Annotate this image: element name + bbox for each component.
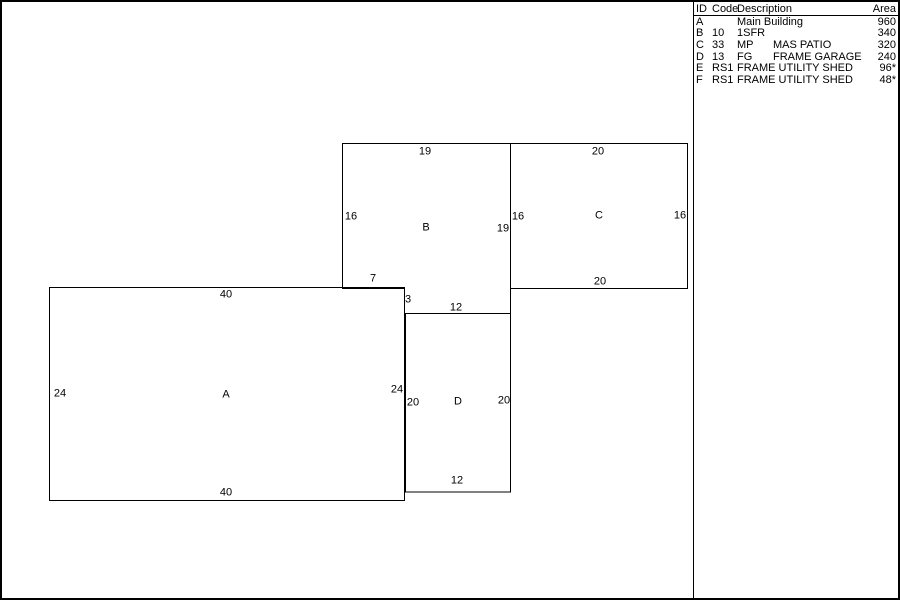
dim-d-left: 20 xyxy=(407,398,419,409)
legend-row-c: C 33 MPMAS PATIO 320 xyxy=(693,39,898,51)
legend-row-f: F RS1 FRAME UTILITY SHED 48* xyxy=(693,74,898,86)
legend-table: ID Code Description Area A Main Building… xyxy=(693,2,898,86)
legend-row-b: B 10 1SFR 340 xyxy=(693,28,898,40)
legend-row-id: C xyxy=(696,39,712,51)
legend-row-desc-text: FRAME UTILITY SHED xyxy=(737,62,853,74)
legend-header-code: Code xyxy=(712,3,737,15)
legend-row-desc-prefix: FG xyxy=(737,51,773,63)
dim-d-right: 20 xyxy=(498,396,510,407)
dim-b-notch-side: 3 xyxy=(405,295,411,306)
legend-row-description: MPMAS PATIO xyxy=(737,39,878,51)
legend-row-desc-text: FRAME UTILITY SHED xyxy=(737,74,853,86)
legend-row-desc-text: MAS PATIO xyxy=(773,39,831,51)
legend-header-description: Description xyxy=(737,3,873,15)
dim-b-notch-bottom: 7 xyxy=(370,274,376,285)
legend-row-description: 1SFR xyxy=(737,27,878,39)
shape-a-label: A xyxy=(222,390,229,401)
legend-row-area: 96* xyxy=(879,62,898,74)
dim-b-left: 16 xyxy=(345,212,357,223)
legend-row-area: 48* xyxy=(879,74,898,86)
shape-b-label: B xyxy=(422,223,429,234)
legend-row-id: D xyxy=(696,51,712,63)
legend-row-area: 320 xyxy=(878,39,898,51)
legend-row-description: FGFRAME GARAGE xyxy=(737,51,878,63)
legend-row-description: FRAME UTILITY SHED xyxy=(737,74,879,86)
dim-a-top: 40 xyxy=(220,290,232,301)
sketch-canvas xyxy=(2,2,898,598)
legend-row-id: E xyxy=(696,62,712,74)
legend-row-code: RS1 xyxy=(712,74,737,86)
legend-row-desc-prefix: MP xyxy=(737,39,773,51)
shape-c-label: C xyxy=(595,211,603,222)
dim-b-top: 19 xyxy=(419,147,431,158)
sketch-page: 40 24 A 24 40 19 16 B 19 7 3 12 20 16 C … xyxy=(0,0,900,600)
legend-row-a: A Main Building 960 xyxy=(693,16,898,28)
dim-c-bottom: 20 xyxy=(594,277,606,288)
shape-d-label: D xyxy=(454,397,462,408)
dim-a-right: 24 xyxy=(391,385,403,396)
legend-row-desc-text: FRAME GARAGE xyxy=(773,51,862,63)
dim-c-top: 20 xyxy=(592,147,604,158)
legend-row-area: 240 xyxy=(878,51,898,63)
legend-row-desc-text: Main Building xyxy=(737,16,803,28)
legend-row-id: B xyxy=(696,27,712,39)
legend-header-area: Area xyxy=(873,3,898,15)
legend-row-area: 340 xyxy=(878,27,898,39)
legend-row-code: 33 xyxy=(712,39,737,51)
legend-row-e: E RS1 FRAME UTILITY SHED 96* xyxy=(693,63,898,75)
legend-header-id: ID xyxy=(696,3,712,15)
legend-header-row: ID Code Description Area xyxy=(693,2,898,16)
legend-row-code: 10 xyxy=(712,27,737,39)
dim-b-right: 19 xyxy=(497,224,509,235)
dim-c-left: 16 xyxy=(512,212,524,223)
dim-a-bottom: 40 xyxy=(220,488,232,499)
legend-row-id: A xyxy=(696,16,712,28)
legend-row-id: F xyxy=(696,74,712,86)
legend-row-desc-text: 1SFR xyxy=(737,27,765,39)
legend-row-area: 960 xyxy=(878,16,898,28)
legend-row-d: D 13 FGFRAME GARAGE 240 xyxy=(693,51,898,63)
legend-row-description: Main Building xyxy=(737,16,878,28)
dim-d-bottom: 12 xyxy=(451,476,463,487)
dim-b-bottom: 12 xyxy=(450,303,462,314)
dim-c-right: 16 xyxy=(674,211,686,222)
dim-a-left: 24 xyxy=(54,389,66,400)
legend-row-code: 13 xyxy=(712,51,737,63)
legend-row-description: FRAME UTILITY SHED xyxy=(737,62,879,74)
legend-row-code: RS1 xyxy=(712,62,737,74)
